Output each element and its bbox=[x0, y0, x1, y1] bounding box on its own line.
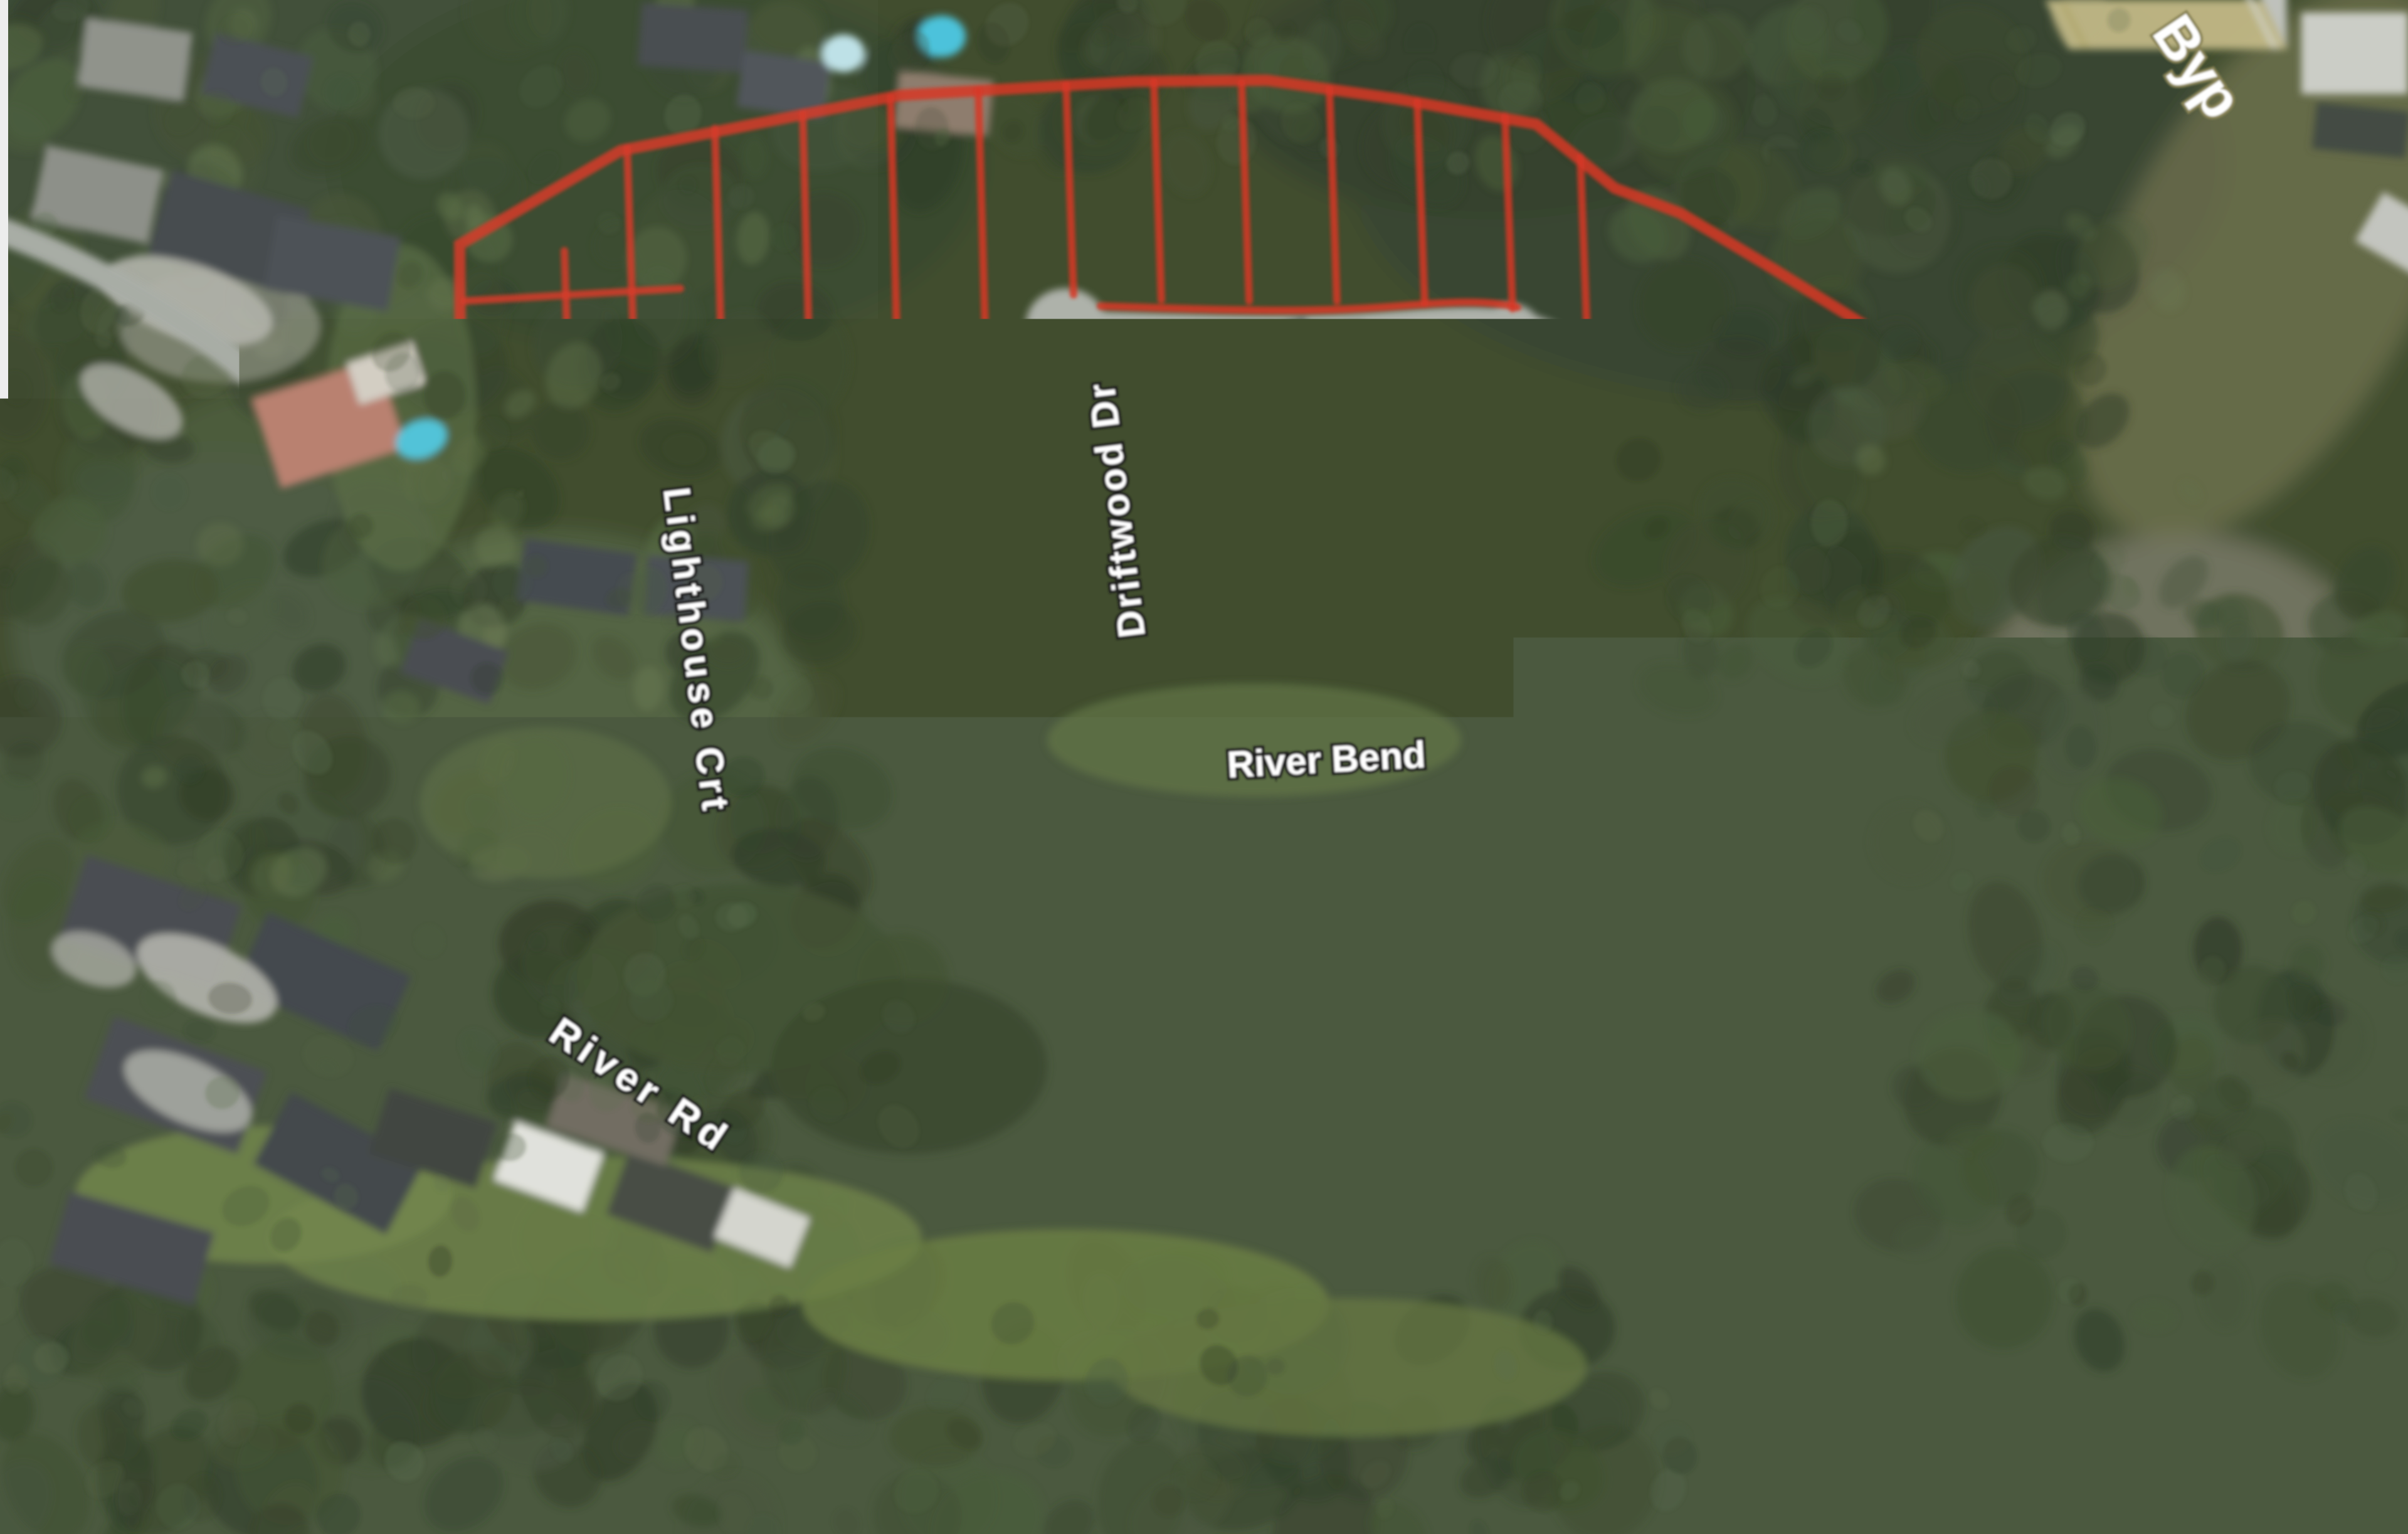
svg-text:Current Improvements: Current Improvements bbox=[1838, 1267, 2256, 1311]
svg-text:SHOULD BE VERIFIED BY THE BUYE: SHOULD BE VERIFIED BY THE BUYER PRIOR TO… bbox=[1736, 1491, 2234, 1505]
svg-text:65 Single Family Lots: 65 Single Family Lots bbox=[1895, 1337, 2088, 1359]
svg-text:ALL INFORMATION, SIZES AND MEA: ALL INFORMATION, SIZES AND MEASUREMENTS … bbox=[1736, 1473, 2370, 1488]
svg-text:Total Land Size 10.3 Acres: Total Land Size 10.3 Acres bbox=[1888, 1366, 2126, 1388]
